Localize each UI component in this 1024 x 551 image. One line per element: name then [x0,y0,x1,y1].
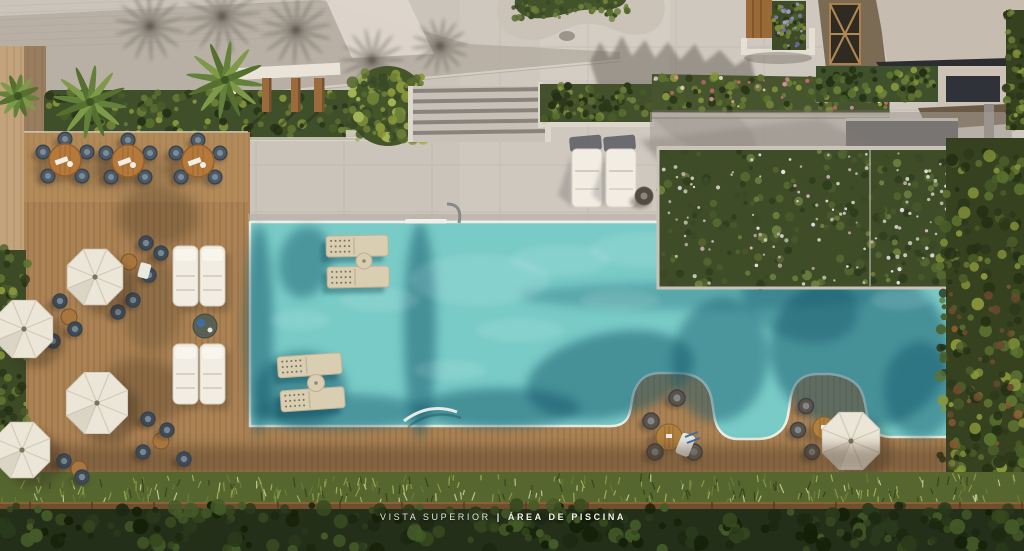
pool-aerial-rendering [0,0,1024,551]
deck-dining-sets [31,132,227,187]
in-pool-lounger [321,235,388,263]
hedge-row-plain [538,82,654,128]
in-pool-table [356,253,372,269]
in-pool-lounger [322,266,389,294]
lounge-table [193,314,217,338]
chaise-lounge [200,246,230,312]
in-pool-lounger [275,387,346,419]
in-pool-table [308,375,325,392]
chaise-lounge [173,246,203,312]
chaise-lounge [200,344,230,410]
in-pool-lounger [272,353,343,385]
building-roof [876,0,1024,64]
pergola-posts [262,78,325,112]
pool-coping-top [248,214,658,220]
wood-bench [746,0,772,38]
rendering-canvas: VISTA SUPERIOR|ÁREA DE PISCINA [0,0,1024,551]
chaise-lounge [173,344,203,410]
skylight-window [830,4,860,64]
stairs [408,84,551,142]
caption: VISTA SUPERIOR|ÁREA DE PISCINA [380,512,626,522]
boulder [559,31,575,41]
caption-title: ÁREA DE PISCINA [508,512,626,522]
bench-and-flowerbed [744,0,812,64]
caption-separator: | [497,512,502,522]
caption-prefix: VISTA SUPERIOR [380,512,491,522]
